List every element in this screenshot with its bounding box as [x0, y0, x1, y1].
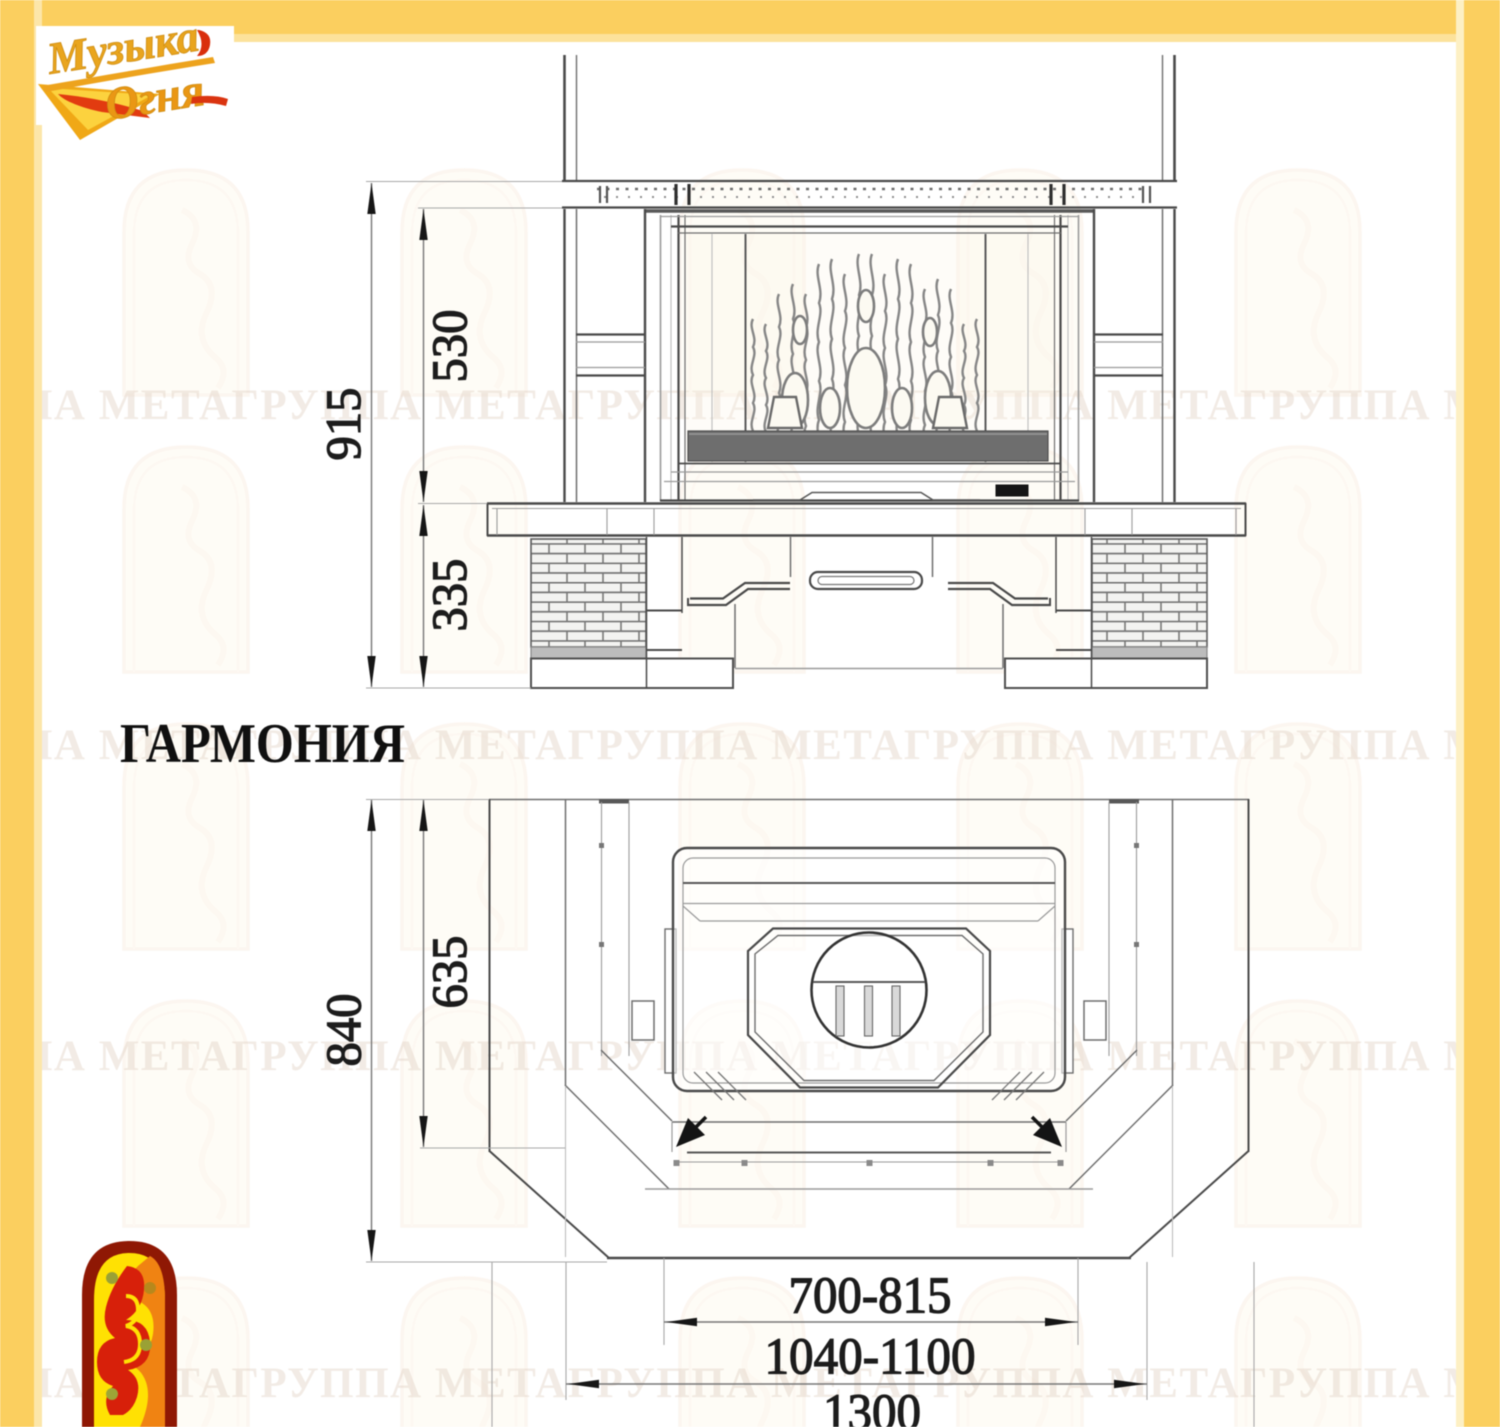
- svg-text:1040-1100: 1040-1100: [765, 1329, 976, 1386]
- svg-text:915: 915: [315, 388, 371, 461]
- svg-text:1300: 1300: [823, 1385, 921, 1427]
- svg-text:635: 635: [421, 936, 477, 1009]
- svg-text:700-815: 700-815: [789, 1268, 952, 1325]
- svg-text:335: 335: [421, 559, 477, 632]
- svg-text:530: 530: [421, 310, 477, 383]
- svg-text:840: 840: [315, 994, 371, 1067]
- svg-text:ГАРМОНИЯ: ГАРМОНИЯ: [120, 713, 405, 775]
